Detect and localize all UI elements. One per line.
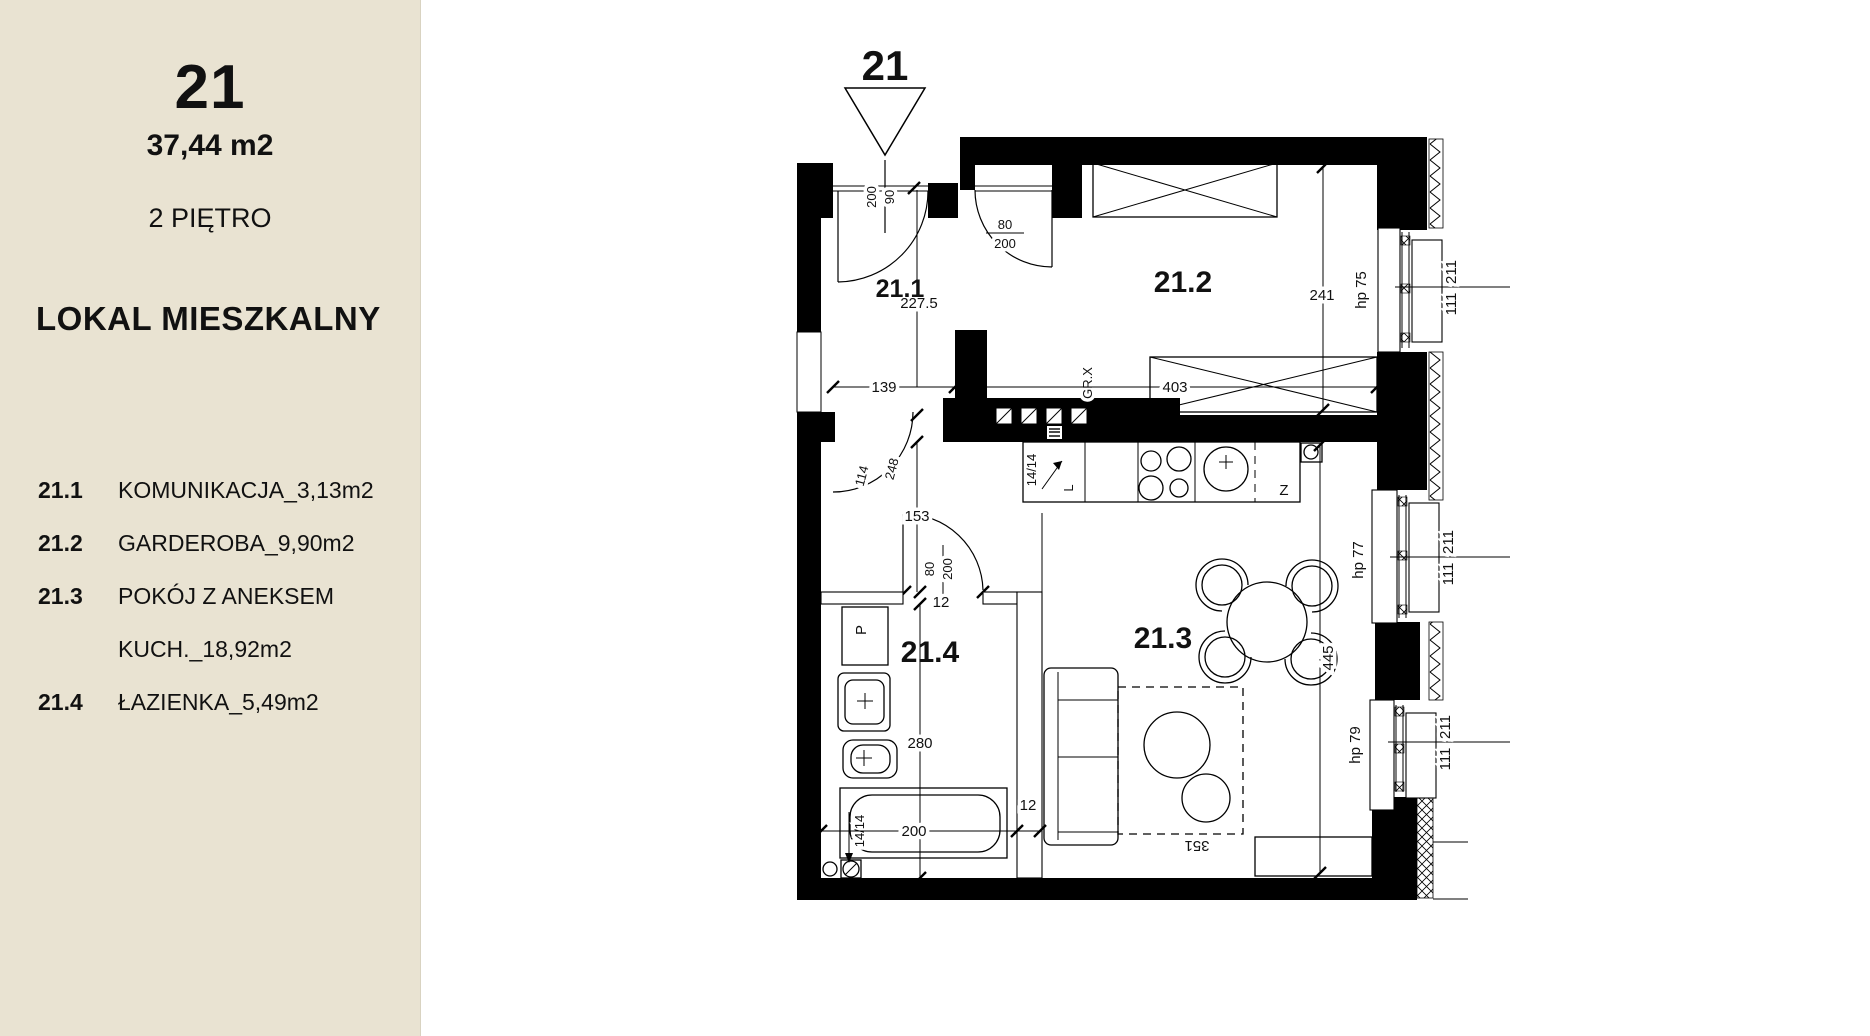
dim-hall-w: 139	[871, 379, 896, 396]
window-dim-top: 211	[1443, 260, 1460, 284]
hob-icon	[1139, 447, 1191, 500]
window-hp79: hp 79 211 111	[1347, 700, 1510, 810]
room-label-21-3: 21.3	[1134, 622, 1192, 655]
chair-icon	[1196, 559, 1248, 611]
dim-wardrobe-d: 241	[1309, 287, 1334, 304]
window-hp77: hp 77 211 111	[1350, 490, 1510, 623]
dim-living-w: 351	[1184, 837, 1209, 854]
kitchen-vent-label: 14/14	[1024, 454, 1039, 487]
dim-bathdoor-h: 200	[940, 558, 955, 580]
dim-door2-w: 80	[998, 217, 1012, 232]
floor-plan-page: 21 37,44 m2 2 PIĘTRO LOKAL MIESZKALNY 21…	[0, 0, 1870, 1036]
fridge-label: Z	[1279, 482, 1288, 499]
dim-living-l: 445	[1320, 645, 1337, 670]
entry-door	[833, 182, 928, 282]
toilet-icon	[843, 740, 897, 778]
room-label-21-2: 21.2	[1154, 266, 1212, 299]
sink-icon	[1204, 447, 1248, 491]
radiator	[1255, 837, 1372, 876]
bath-vent: 14/14	[845, 812, 867, 863]
dim-corridor-l: 153	[904, 508, 929, 525]
dim-tub-l: 200	[901, 823, 926, 840]
dining-set	[1196, 559, 1338, 685]
dim-wardrobe-w: 403	[1162, 379, 1187, 396]
dim-entry-door-h: 200	[864, 186, 879, 208]
window-label: hp 79	[1347, 726, 1364, 764]
window-label: hp 75	[1353, 271, 1370, 309]
washing-machine-icon: P	[842, 607, 888, 665]
walls	[797, 137, 1427, 900]
socket-icon	[1069, 406, 1089, 426]
socket-icon	[1019, 406, 1039, 426]
bathroom-door	[899, 514, 989, 598]
socket-icon	[994, 406, 1014, 426]
dim-bath-l: 280	[907, 735, 932, 752]
dim-niche-b: 248	[882, 456, 902, 481]
vent-arrow-icon	[1053, 461, 1062, 470]
window-dim-bottom: 111	[1443, 293, 1460, 316]
room-label-21-1: 21.1	[876, 275, 925, 303]
window-dim-bottom: 111	[1440, 563, 1457, 586]
dim-partition-t: 12	[933, 594, 950, 611]
coffee-table-icon	[1182, 774, 1230, 822]
chair-icon	[1286, 560, 1338, 612]
dim-entry-door-w: 90	[882, 190, 897, 204]
kitchen-counter: 14/14 L Z	[1023, 442, 1322, 502]
window-dim-top: 211	[1440, 530, 1457, 554]
dim-tub-gap: 12	[1020, 797, 1037, 814]
window-dim-top: 211	[1437, 715, 1454, 739]
kitchen-corner-label: L	[1061, 484, 1076, 491]
dim-door2-h: 200	[994, 236, 1016, 251]
window-label: hp 77	[1350, 541, 1367, 579]
socket-icon	[1044, 406, 1064, 439]
rug-outline	[1118, 687, 1243, 834]
room-label-21-4: 21.4	[901, 636, 960, 669]
sofa-icon	[1044, 668, 1118, 845]
dim-bathdoor-w: 80	[922, 562, 937, 576]
wardrobe-top	[1093, 163, 1277, 217]
window-hp75: hp 75 211 111	[1353, 228, 1510, 352]
floor-drain-icons	[823, 860, 861, 878]
chair-icon	[1199, 631, 1251, 683]
washbasin-icon	[838, 673, 890, 731]
coffee-table-icon	[1144, 712, 1210, 778]
wardrobe-room-door	[975, 186, 1052, 267]
floor-plan: 21	[0, 0, 1870, 1036]
entrance-marker-number: 21	[862, 42, 909, 89]
wardrobe-unit-label: GR.X	[1080, 367, 1095, 399]
dimensions: 200 90 139 227.5 80 200 403 241 114 248	[815, 161, 1383, 884]
window-dim-bottom: 111	[1437, 748, 1454, 771]
table-icon	[1227, 582, 1307, 662]
washer-label: P	[853, 625, 870, 635]
